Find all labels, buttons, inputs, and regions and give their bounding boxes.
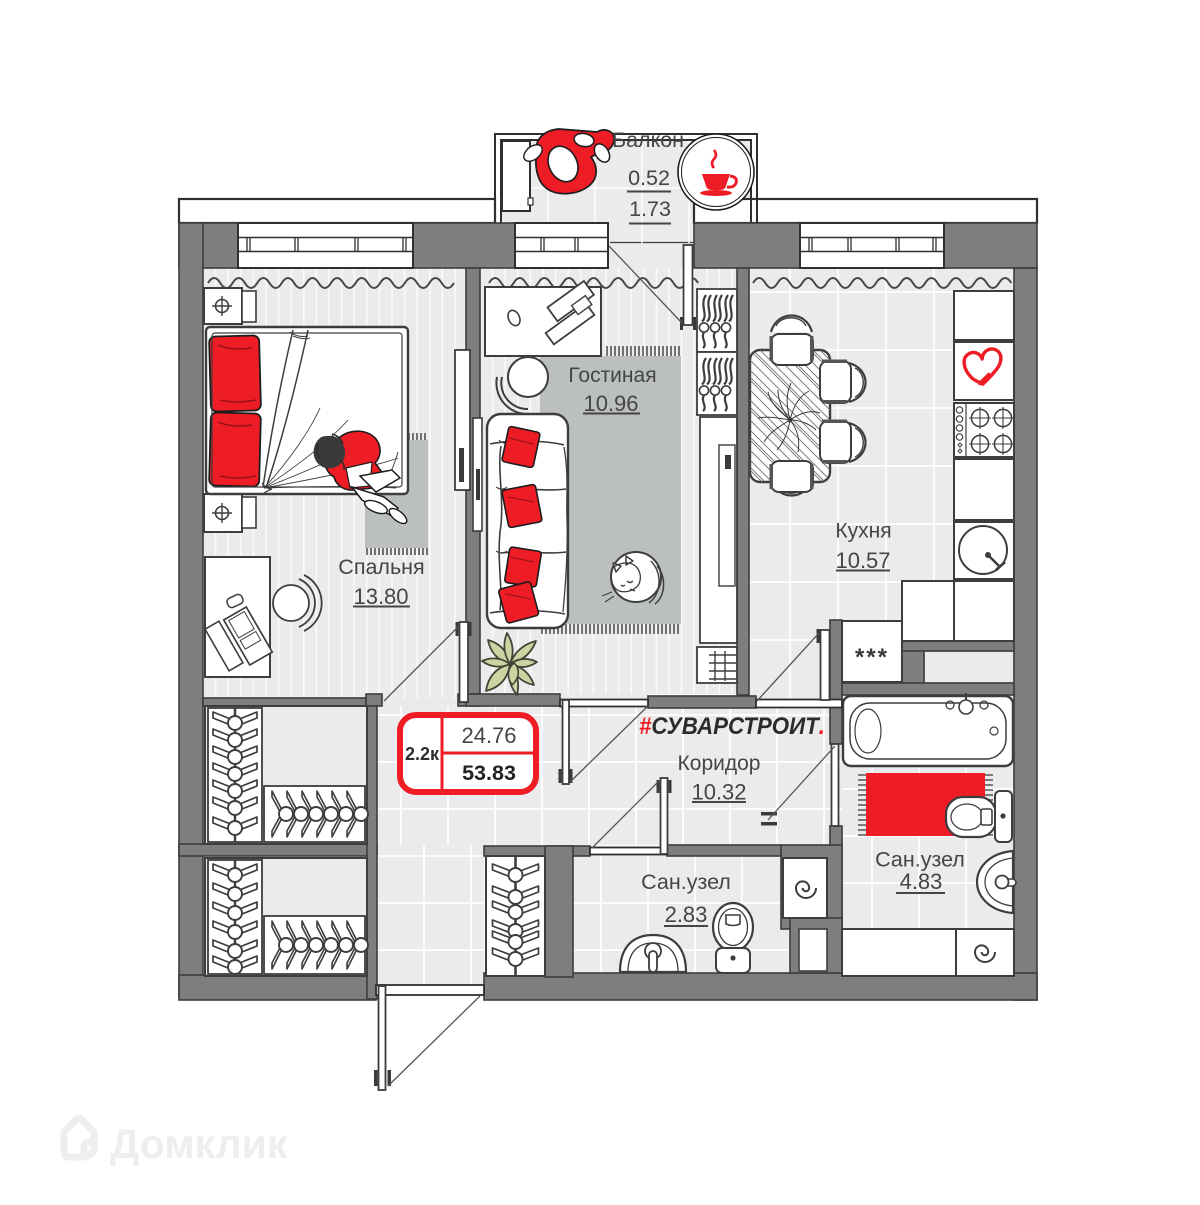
svg-text:Спальня: Спальня <box>338 555 424 579</box>
svg-text:Коридор: Коридор <box>678 752 761 775</box>
svg-text:0.52: 0.52 <box>628 166 670 190</box>
svg-text:Гостиная: Гостиная <box>568 364 656 387</box>
svg-text:53.83: 53.83 <box>462 761 516 785</box>
svg-text:Балкон: Балкон <box>612 128 684 152</box>
svg-text:4.83: 4.83 <box>900 869 943 894</box>
svg-text:Домклик: Домклик <box>110 1121 288 1167</box>
svg-text:10.96: 10.96 <box>583 391 638 416</box>
svg-text:2.2к: 2.2к <box>405 744 440 764</box>
svg-text:24.76: 24.76 <box>461 723 516 748</box>
svg-text:1.73: 1.73 <box>629 197 671 221</box>
svg-text:2.83: 2.83 <box>665 902 708 927</box>
svg-text:***: *** <box>855 644 889 671</box>
svg-text:#СУВАРСТРОИТ.: #СУВАРСТРОИТ. <box>639 712 825 739</box>
svg-text:13.80: 13.80 <box>353 584 408 609</box>
svg-text:Кухня: Кухня <box>835 520 891 543</box>
svg-text:Сан.узел: Сан.узел <box>641 870 731 894</box>
svg-text:Сан.узел: Сан.узел <box>875 848 965 872</box>
svg-text:10.32: 10.32 <box>691 780 746 805</box>
svg-text:10.57: 10.57 <box>835 548 890 573</box>
